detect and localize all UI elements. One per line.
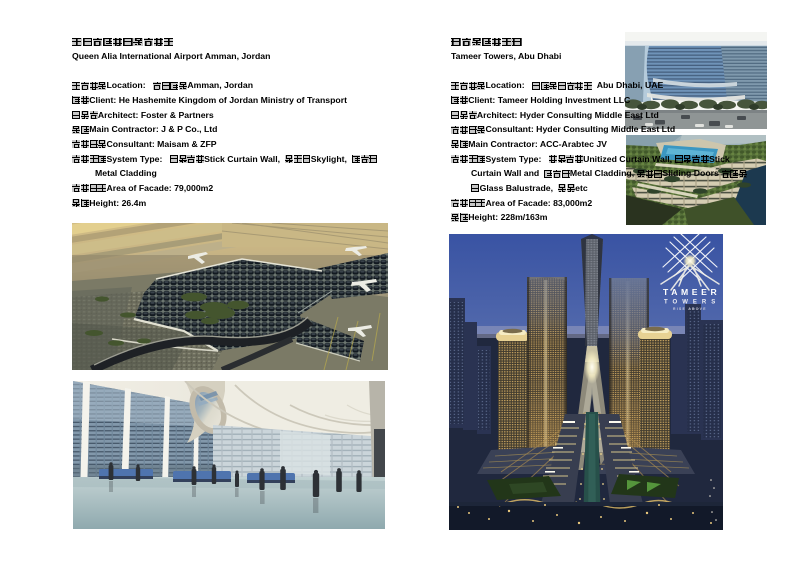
svg-text:TAMEER: TAMEER — [663, 287, 720, 297]
svg-text:TOWERS: TOWERS — [664, 300, 720, 306]
svg-text:RISE ABOVE: RISE ABOVE — [673, 307, 707, 311]
